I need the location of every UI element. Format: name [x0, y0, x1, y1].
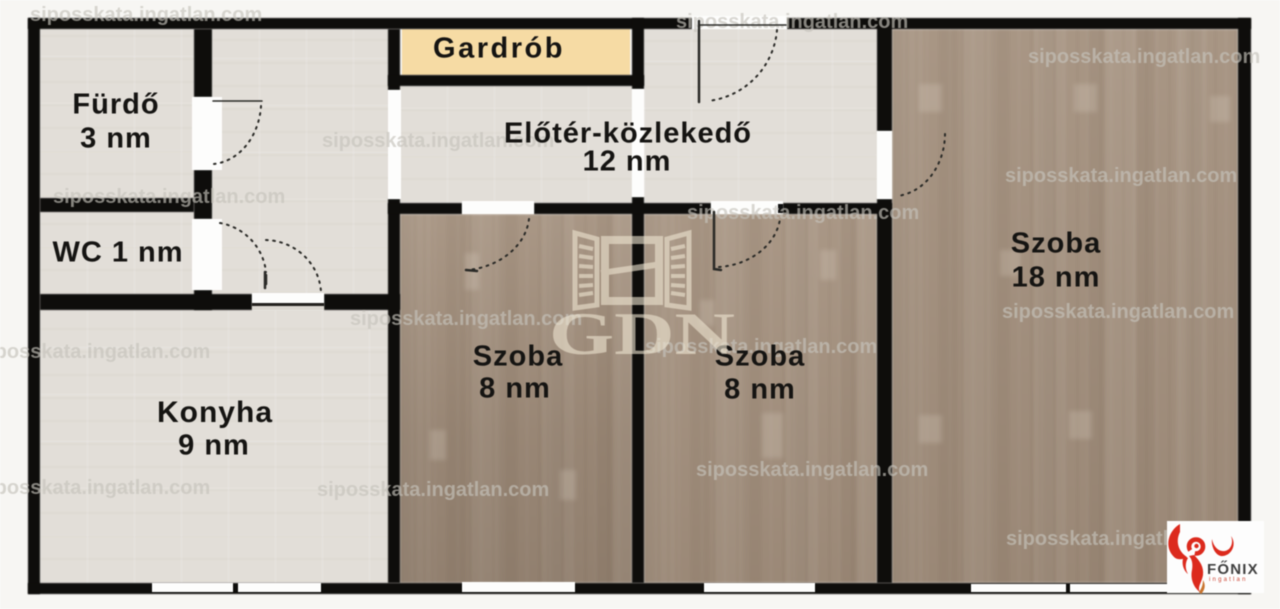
svg-text:FŐNIX: FŐNIX — [1207, 560, 1259, 578]
svg-text:ingatlan: ingatlan — [1209, 577, 1248, 583]
svg-text:GDN: GDN — [549, 301, 735, 367]
